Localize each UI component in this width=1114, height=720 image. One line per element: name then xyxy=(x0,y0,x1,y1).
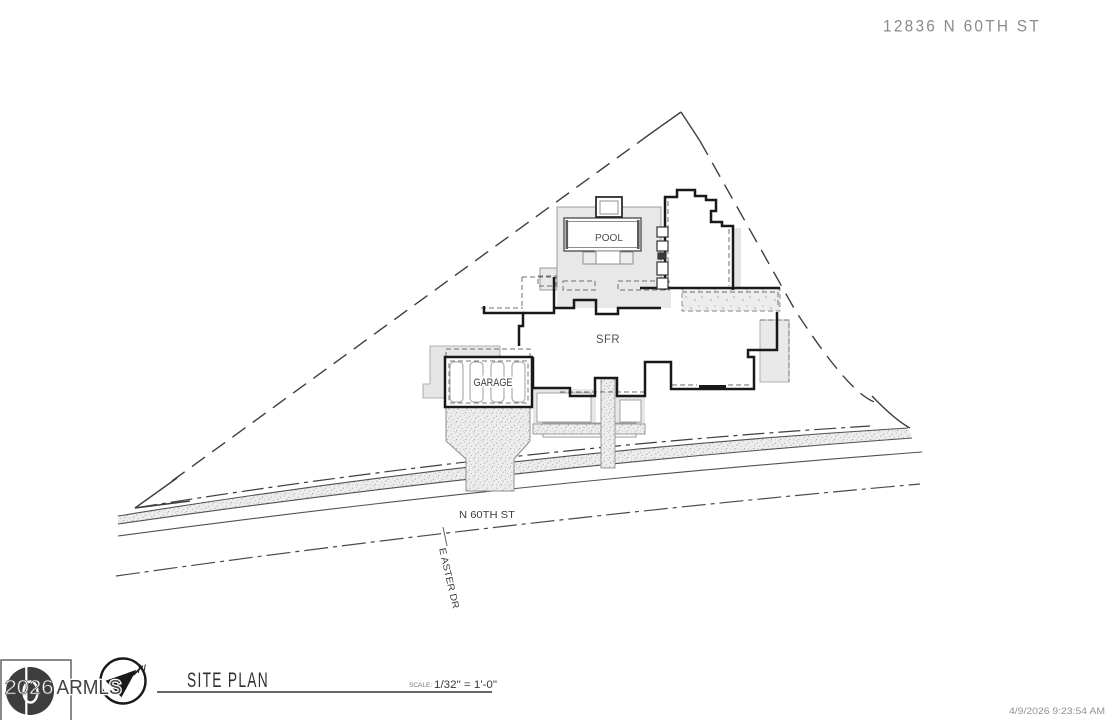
svg-text:ARMLS: ARMLS xyxy=(57,677,122,699)
svg-text:GARAGE: GARAGE xyxy=(474,377,513,389)
svg-text:2026: 2026 xyxy=(5,677,54,699)
svg-text:4/9/2026 9:23:54 AM: 4/9/2026 9:23:54 AM xyxy=(1009,706,1105,717)
svg-text:SITE PLAN: SITE PLAN xyxy=(187,669,269,692)
svg-text:N 60TH ST: N 60TH ST xyxy=(459,510,515,521)
svg-text:SCALE:: SCALE: xyxy=(409,682,432,689)
svg-text:SFR: SFR xyxy=(596,332,620,346)
svg-text:1/32" = 1'-0": 1/32" = 1'-0" xyxy=(434,679,497,691)
svg-text:POOL: POOL xyxy=(595,232,623,244)
svg-text:N: N xyxy=(138,664,147,676)
svg-text:12836 N 60TH ST: 12836 N 60TH ST xyxy=(883,17,1041,36)
